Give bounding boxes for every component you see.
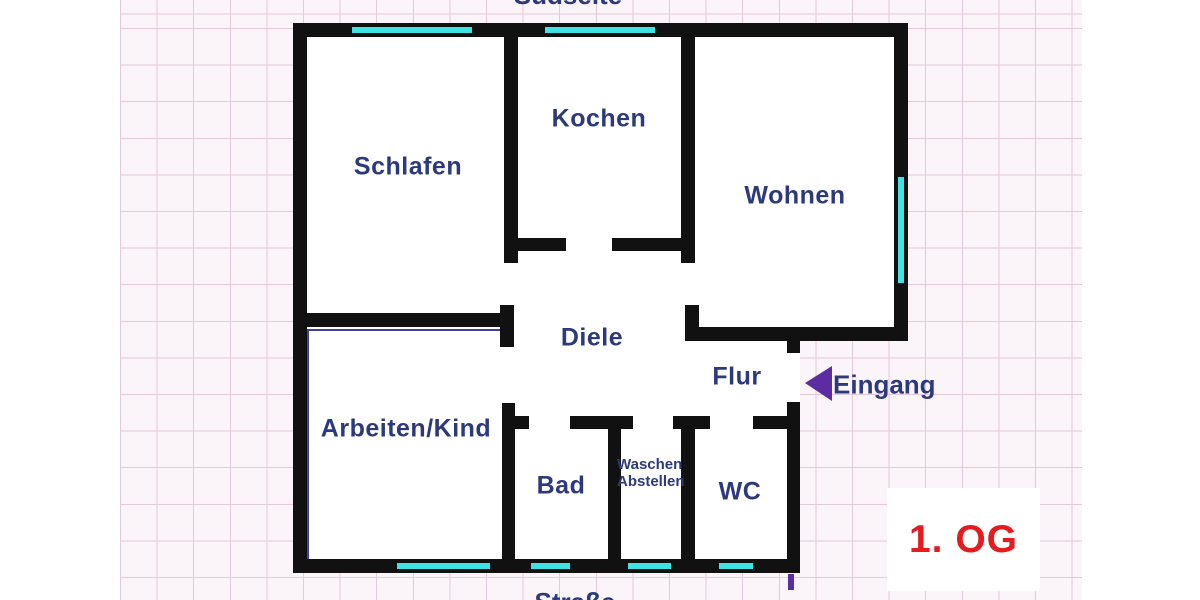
wall-bad-waschen-divider bbox=[608, 416, 621, 573]
wall-outer-left bbox=[293, 23, 307, 573]
wall-waschen-wc-divider bbox=[681, 416, 695, 573]
wall-kochen-wohnen-divider bbox=[681, 23, 695, 263]
wall-wohnen-bottom bbox=[685, 327, 908, 341]
room-label-diele: Diele bbox=[561, 324, 623, 353]
window-marker-kochen-top bbox=[545, 27, 655, 33]
wall-kochen-bottom-left bbox=[504, 238, 566, 251]
wall-wc-top-right bbox=[753, 416, 800, 429]
room-label-waschen-line2: Abstellen bbox=[617, 473, 685, 490]
window-marker-wohnen-right bbox=[898, 177, 904, 283]
orientation-label-bottom: Straße bbox=[535, 587, 616, 600]
room-label-waschen-line1: Waschen bbox=[617, 456, 685, 473]
wall-arbeiten-top bbox=[293, 313, 500, 327]
window-marker-schlafen-top bbox=[352, 27, 472, 33]
entrance-door-pen-mark bbox=[788, 574, 794, 590]
orientation-label-top: Südseite bbox=[514, 0, 622, 11]
wall-schlafen-kochen-divider bbox=[504, 23, 518, 263]
floor-plan-canvas: Schlafen Kochen Wohnen Diele Flur Arbeit… bbox=[0, 0, 1200, 600]
wall-arbeiten-top-cap bbox=[500, 305, 514, 347]
window-marker-arbeiten-bottom bbox=[397, 563, 490, 569]
window-marker-wc-bottom bbox=[719, 563, 753, 569]
wall-bad-top-cap bbox=[502, 416, 529, 429]
entrance-label: Eingang bbox=[833, 370, 936, 401]
room-label-wohnen: Wohnen bbox=[744, 182, 845, 211]
room-label-schlafen: Schlafen bbox=[354, 153, 462, 182]
entrance-arrow-icon bbox=[805, 366, 832, 401]
room-label-arbeiten-kind: Arbeiten/Kind bbox=[321, 415, 491, 444]
room-label-flur: Flur bbox=[712, 363, 761, 392]
room-label-kochen: Kochen bbox=[552, 105, 647, 134]
pen-line-arbeiten-left bbox=[307, 329, 309, 559]
floor-label: 1. OG bbox=[909, 518, 1018, 562]
room-label-wc: WC bbox=[719, 478, 762, 507]
wall-bad-waschen-cap bbox=[570, 416, 633, 429]
wall-entrance-stub bbox=[787, 341, 800, 353]
pen-line-arbeiten-top bbox=[307, 329, 500, 331]
floor-label-box: 1. OG bbox=[887, 488, 1040, 591]
room-label-bad: Bad bbox=[537, 472, 586, 501]
wall-wohnen-bottom-stub bbox=[685, 305, 699, 341]
window-marker-bad-bottom bbox=[531, 563, 570, 569]
window-marker-waschen-bottom bbox=[628, 563, 671, 569]
room-label-waschen-abstellen: Waschen Abstellen bbox=[617, 456, 685, 490]
